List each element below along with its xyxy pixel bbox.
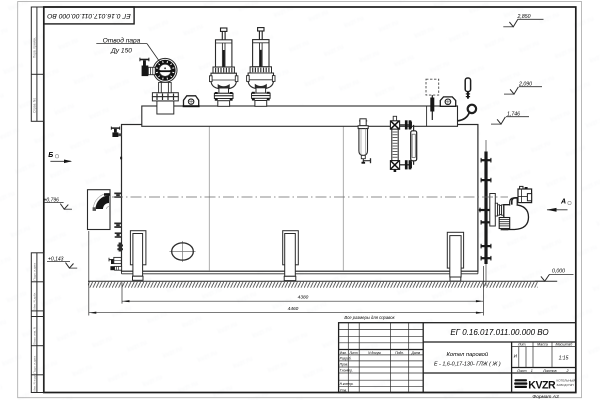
svg-text:Отвод пара: Отвод пара xyxy=(103,36,141,44)
svg-text:Справ. No: Справ. No xyxy=(33,98,37,113)
svg-text:2: 2 xyxy=(565,369,568,373)
svg-text:Б: Б xyxy=(48,152,53,159)
svg-text:Инв. N подл.: Инв. N подл. xyxy=(33,374,37,392)
svg-text:Формат А3: Формат А3 xyxy=(532,394,559,400)
svg-text:Лист: Лист xyxy=(348,351,358,355)
svg-text:Н.контр.: Н.контр. xyxy=(340,382,354,386)
svg-text:Т.контр.: Т.контр. xyxy=(340,369,353,373)
svg-text:4380: 4380 xyxy=(298,295,309,301)
svg-text:N докум.: N докум. xyxy=(368,351,381,355)
svg-text:Листов: Листов xyxy=(542,369,557,373)
svg-text:Разраб.: Разраб. xyxy=(340,357,352,361)
svg-text:4460: 4460 xyxy=(288,306,299,312)
svg-text:Лист: Лист xyxy=(516,369,527,373)
svg-text:0,000: 0,000 xyxy=(552,269,565,275)
svg-text:ЕГ 0.16.017.011.00.000 ВО: ЕГ 0.16.017.011.00.000 ВО xyxy=(450,328,548,337)
svg-text:Подп. и дата: Подп. и дата xyxy=(33,262,37,280)
svg-text:ЗАВОД РЭП: ЗАВОД РЭП xyxy=(557,383,574,387)
svg-text:Утв.: Утв. xyxy=(340,388,348,392)
svg-text:Инв. N дубл.: Инв. N дубл. xyxy=(33,292,37,310)
svg-text:А: А xyxy=(560,199,566,206)
svg-text:Дата: Дата xyxy=(411,351,421,355)
svg-text:ЕГ 0.16.017.011.00.000 ВО: ЕГ 0.16.017.011.00.000 ВО xyxy=(47,12,131,19)
svg-text:1: 1 xyxy=(531,369,533,373)
svg-text:Изм.: Изм. xyxy=(340,351,347,355)
svg-text:Котел паровой: Котел паровой xyxy=(447,351,489,358)
svg-text:1:15: 1:15 xyxy=(559,355,569,361)
svg-text:Ду 150: Ду 150 xyxy=(110,47,132,54)
svg-text:Масса: Масса xyxy=(537,343,548,347)
svg-text:Лит.: Лит. xyxy=(517,343,526,347)
svg-text:Перв. примен.: Перв. примен. xyxy=(33,37,37,58)
svg-text:Все размеры для справок: Все размеры для справок xyxy=(344,315,395,320)
svg-text:Масштаб: Масштаб xyxy=(556,343,574,347)
svg-text:Взам. инв. N: Взам. инв. N xyxy=(33,327,37,345)
svg-text:KVZR: KVZR xyxy=(528,380,556,392)
svg-text:КОТЕЛЬНЫЙ: КОТЕЛЬНЫЙ xyxy=(557,379,576,383)
svg-text:Подп. и дата: Подп. и дата xyxy=(33,355,37,373)
svg-text:Пров.: Пров. xyxy=(340,363,349,367)
svg-text:Е - 1,6-0,17-130- ГЛЖ ( Ж ): Е - 1,6-0,17-130- ГЛЖ ( Ж ) xyxy=(434,361,501,367)
svg-text:Подп.: Подп. xyxy=(395,351,404,355)
